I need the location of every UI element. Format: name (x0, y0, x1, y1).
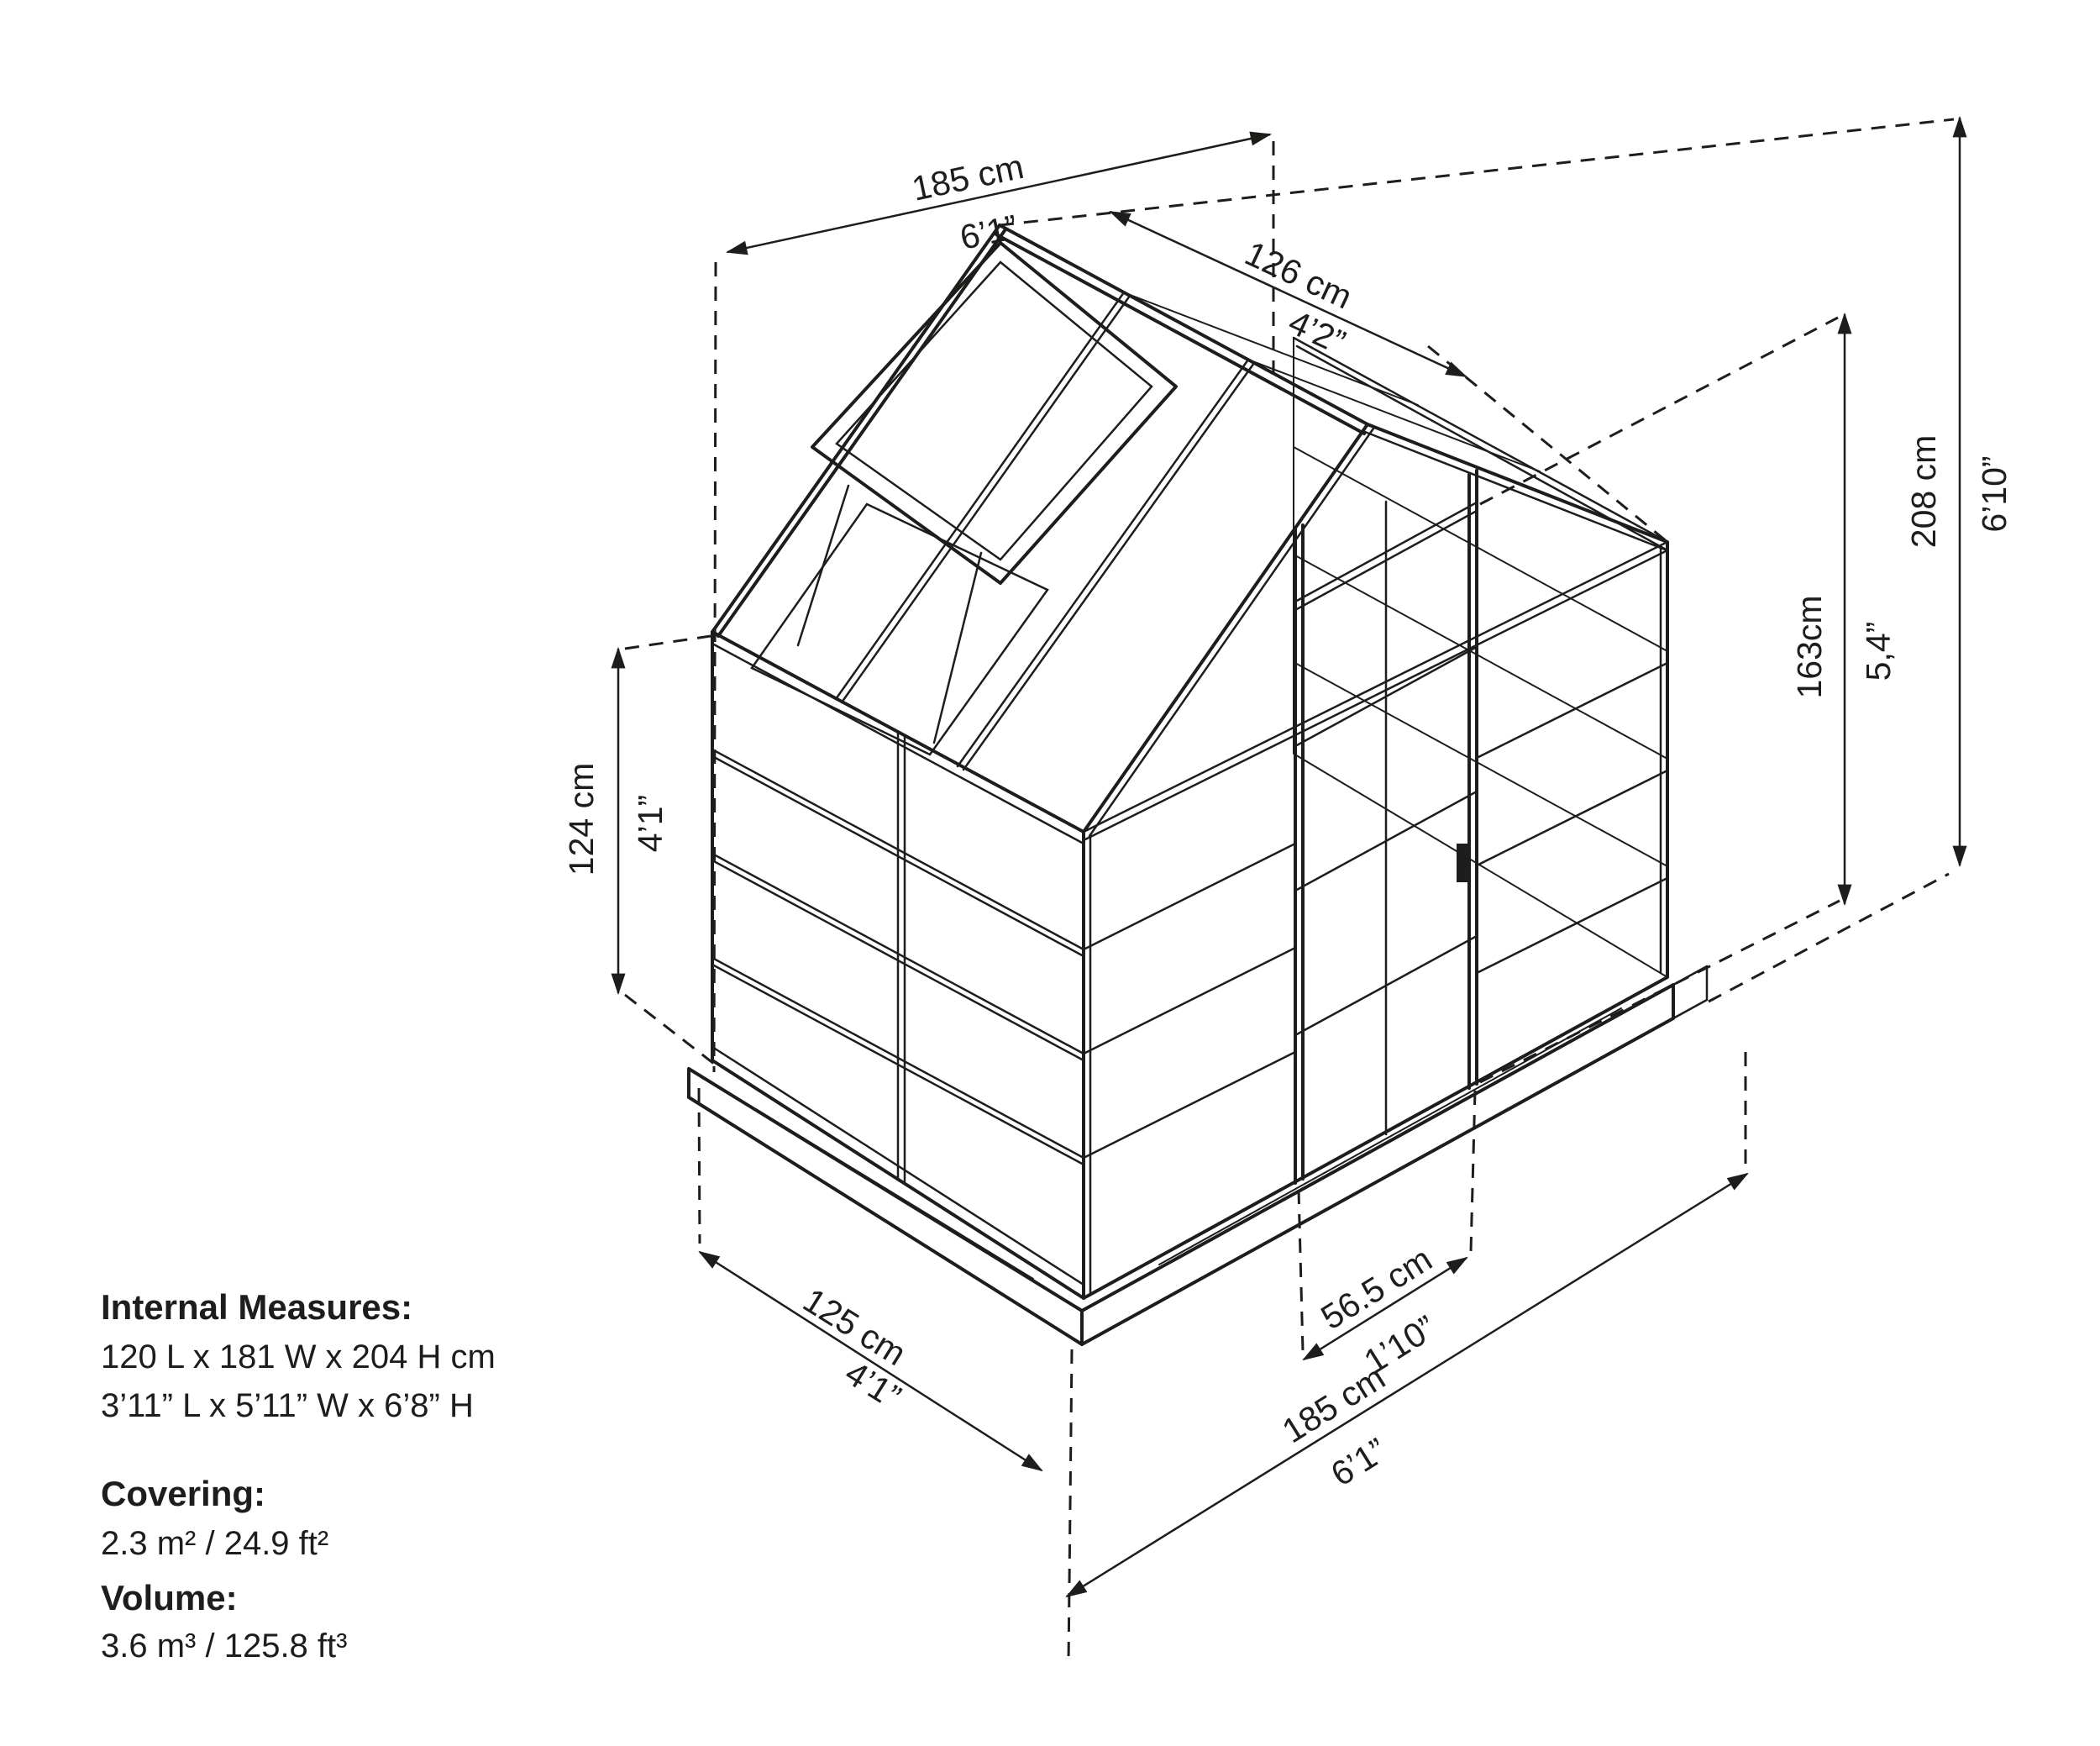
page: { "title": "Greenhouse dimensional diagr… (0, 0, 2100, 1746)
dimline-width-bottom (1067, 1174, 1747, 1596)
label-wall-height-imp: 4’1” (631, 795, 669, 852)
door-handle (1457, 844, 1467, 882)
door (1295, 471, 1477, 1183)
covering-value: 2.3 m² / 24.9 ft² (101, 1525, 328, 1562)
ext-124-top (625, 636, 711, 649)
spec-block: Internal Measures: 120 L x 181 W x 204 H… (101, 1287, 496, 1664)
ext-125-left (699, 1088, 700, 1244)
roof (712, 225, 1540, 770)
right-wall (1294, 338, 1667, 977)
internal-measures-imperial: 3’11” L x 5’11” W x 6’8” H (101, 1387, 474, 1424)
covering-label: Covering: (101, 1474, 265, 1513)
front-face (1084, 424, 1667, 1298)
label-door-height-cm: 163cm (1790, 595, 1829, 698)
dimline-roof-slope (1110, 212, 1466, 376)
ext-door-width-left (1299, 1190, 1303, 1351)
label-total-height-imp: 6’10” (1975, 455, 2013, 532)
ext-door-top-to-163 (1480, 318, 1838, 504)
label-door-height-imp: 5,4” (1859, 622, 1898, 681)
volume-label: Volume: (101, 1578, 238, 1617)
internal-measures-metric: 120 L x 181 W x 204 H cm (101, 1338, 496, 1375)
ext-left-vertical-185 (714, 262, 716, 1072)
ext-124-bottom (625, 995, 714, 1064)
label-total-height-cm: 208 cm (1904, 435, 1943, 548)
label-width-bottom-imp: 6’1” (1324, 1431, 1393, 1494)
ext-door-width-right (1471, 1091, 1475, 1252)
ext-front-corner-vertical (1068, 1349, 1072, 1664)
greenhouse-diagram: 185 cm 6’1” 126 cm 4’2” 208 cm 6’10” 163… (0, 0, 2100, 1746)
base-slab (689, 966, 1707, 1344)
volume-value: 3.6 m³ / 125.8 ft³ (101, 1628, 347, 1664)
ext-back-apex-to-208 (1000, 119, 1954, 225)
internal-measures-label: Internal Measures: (101, 1287, 412, 1327)
ext-base-to-208 (1709, 874, 1949, 1002)
dimension-labels: 185 cm 6’1” 126 cm 4’2” 208 cm 6’10” 163… (562, 147, 2013, 1494)
label-wall-height-cm: 124 cm (562, 763, 601, 876)
greenhouse-structure (689, 225, 1707, 1344)
